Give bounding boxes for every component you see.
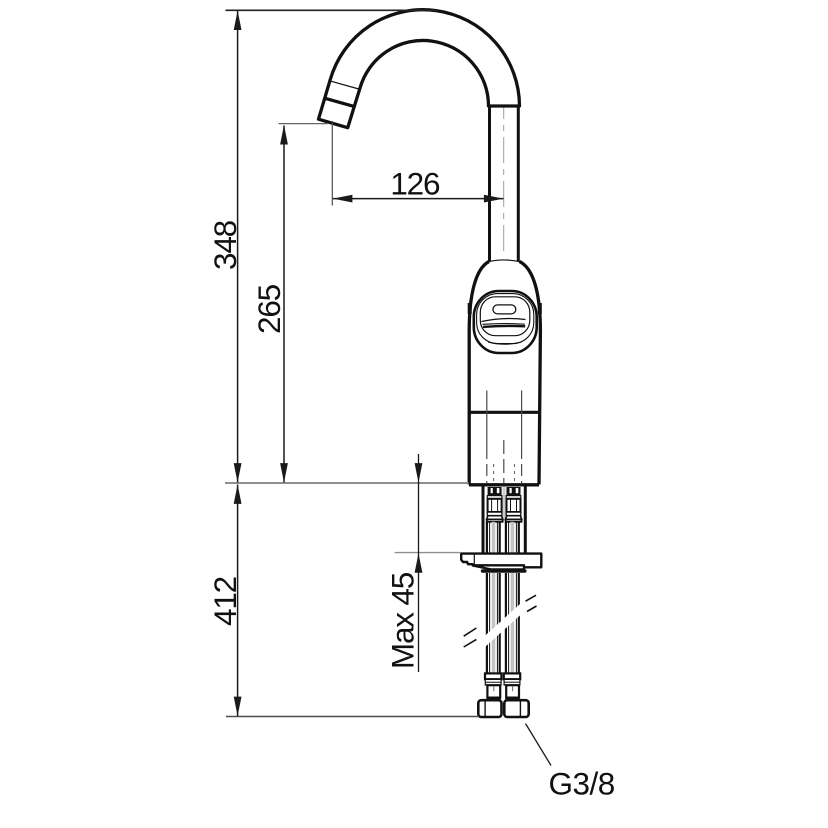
- svg-text:Max 45: Max 45: [385, 572, 421, 669]
- svg-text:348: 348: [207, 220, 243, 270]
- svg-text:126: 126: [390, 166, 440, 202]
- svg-text:265: 265: [251, 284, 287, 334]
- svg-text:412: 412: [207, 577, 243, 626]
- svg-text:G3/8: G3/8: [549, 766, 615, 802]
